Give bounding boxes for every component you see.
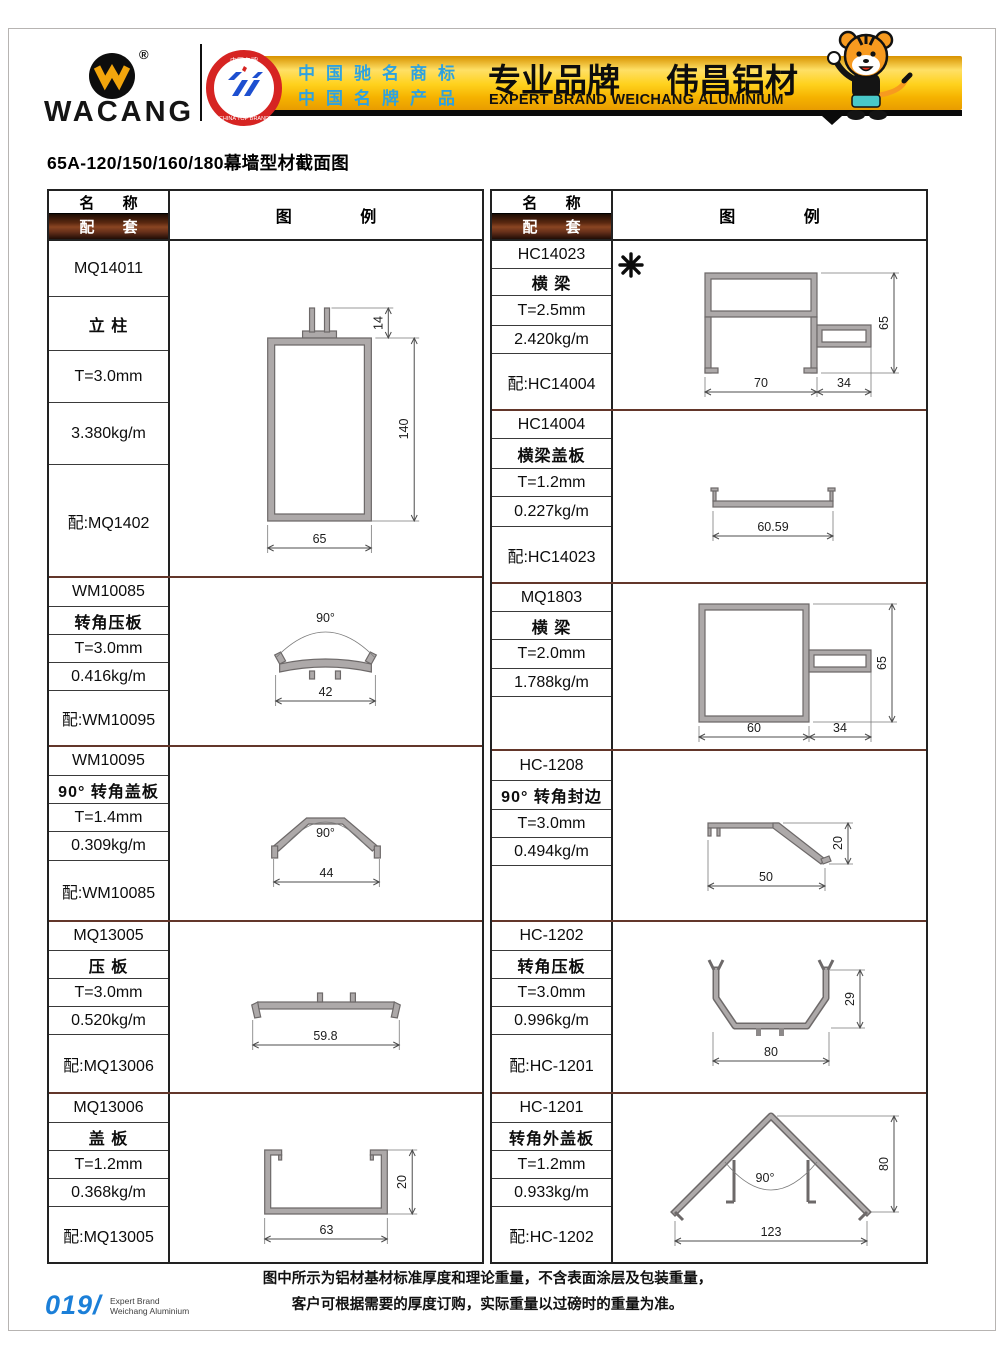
profile-block-mq1803: MQ1803 横 梁 T=2.0mm 1.788kg/m 60 34 65 — [492, 584, 926, 751]
dim-label: 42 — [319, 685, 333, 699]
profile-block-wm10085: WM10085 转角压板 T=3.0mm 0.416kg/m 配:WM10095… — [49, 578, 482, 747]
badge-bottom-text: CHINA TOP BRAND — [219, 116, 269, 122]
profile-code: HC14023 — [492, 241, 611, 269]
profile-code: MQ1803 — [492, 584, 611, 612]
dim-label: 65 — [877, 316, 891, 330]
profile-diagram-mq13006: 20 63 — [170, 1094, 482, 1262]
dim-label: 123 — [761, 1225, 782, 1239]
profile-thickness: T=2.5mm — [492, 296, 611, 326]
profile-weight: 1.788kg/m — [492, 669, 611, 697]
profile-name: 转角压板 — [492, 951, 611, 979]
profile-block-hc1208: HC-1208 90° 转角封边 T=3.0mm 0.494kg/m 50 20 — [492, 751, 926, 922]
profile-block-hc1201: HC-1201 转角外盖板 T=1.2mm 0.933kg/m 配:HC-120… — [492, 1094, 926, 1262]
footer-note-line1: 图中所示为铝材基材标准厚度和理论重量，不含表面涂层及包装重量， — [47, 1266, 928, 1292]
profile-weight: 0.996kg/m — [492, 1007, 611, 1035]
dim-label: 140 — [397, 419, 411, 440]
banner-slogan-en: EXPERT BRAND WEICHANG ALUMINIUM — [489, 92, 784, 108]
badge-star-left: ★ — [214, 84, 220, 92]
profile-weight: 0.416kg/m — [49, 663, 168, 691]
profile-diagram-wm10095: 90° 44 — [170, 747, 482, 920]
dim-label: 70 — [754, 376, 768, 390]
profile-block-hc1202: HC-1202 转角压板 T=3.0mm 0.996kg/m 配:HC-1201… — [492, 922, 926, 1094]
profile-match: 配:MQ13006 — [49, 1035, 168, 1092]
profile-diagram-hc14004: 60.59 — [613, 411, 926, 582]
profile-diagram-hc14023: 70 34 65 — [613, 241, 926, 409]
dim-label: 14 — [371, 316, 385, 330]
col-header-match: 配 套 — [49, 213, 168, 239]
profile-code: MQ13005 — [49, 922, 168, 951]
profile-name: 横梁盖板 — [492, 439, 611, 469]
dim-label: 80 — [877, 1157, 891, 1171]
dim-label: 20 — [395, 1175, 409, 1189]
profile-name: 横 梁 — [492, 269, 611, 296]
profile-weight: 0.494kg/m — [492, 838, 611, 866]
profile-name: 盖 板 — [49, 1123, 168, 1151]
profile-diagram-mq14011: 14 140 65 — [170, 241, 482, 576]
profile-thickness: T=3.0mm — [49, 979, 168, 1007]
col-header-legend: 图 例 — [170, 191, 482, 239]
dim-label: 44 — [320, 866, 334, 880]
table-header-left: 名 称 配 套 图 例 — [49, 191, 482, 241]
page-label-line2: Weichang Aluminium — [110, 1306, 189, 1316]
claim-line-1: 中国驰名商标 — [298, 61, 466, 86]
dim-label: 20 — [831, 836, 845, 850]
header-divider — [200, 44, 202, 121]
profile-code: WM10095 — [49, 747, 168, 776]
claim-line-2: 中国名牌产品 — [298, 86, 466, 111]
profile-weight: 0.309kg/m — [49, 832, 168, 861]
profile-name: 90° 转角封边 — [492, 781, 611, 810]
profile-match: 配:MQ13005 — [49, 1207, 168, 1262]
profile-name: 转角压板 — [49, 607, 168, 635]
profile-match: 配:HC14023 — [492, 527, 611, 582]
profile-name: 90° 转角盖板 — [49, 776, 168, 804]
profile-match: 配:MQ1402 — [49, 465, 168, 576]
profile-diagram-mq1803: 60 34 65 — [613, 584, 926, 749]
tiger-mascot-icon — [818, 27, 914, 126]
profile-thickness: T=1.2mm — [49, 1151, 168, 1179]
profile-thickness: T=2.0mm — [492, 640, 611, 669]
profile-code: HC14004 — [492, 411, 611, 439]
profile-thickness: T=1.2mm — [492, 469, 611, 497]
profile-match: 配:WM10085 — [49, 861, 168, 920]
dim-label: 80 — [764, 1045, 778, 1059]
profile-table-right: 名 称 配 套 图 例 HC14023 横 梁 T=2.5mm 2.420kg/… — [490, 189, 928, 1264]
dim-label: 63 — [320, 1223, 334, 1237]
china-top-brand-badge: 中国名牌 CHINA TOP BRAND ★ ★ — [206, 50, 282, 126]
profile-name: 立 柱 — [49, 297, 168, 351]
angle-label: 90° — [316, 611, 335, 625]
profile-weight: 2.420kg/m — [492, 326, 611, 354]
dim-label: 60 — [747, 721, 761, 735]
dim-label: 34 — [837, 376, 851, 390]
dim-label: 65 — [313, 532, 327, 546]
profile-thickness: T=3.0mm — [492, 979, 611, 1007]
profile-thickness: T=3.0mm — [49, 351, 168, 403]
angle-label: 90° — [316, 826, 335, 840]
profile-weight: 0.520kg/m — [49, 1007, 168, 1035]
dim-label: 29 — [843, 992, 857, 1006]
table-header-right: 名 称 配 套 图 例 — [492, 191, 926, 241]
profile-block-hc14023: HC14023 横 梁 T=2.5mm 2.420kg/m 配:HC14004 … — [492, 241, 926, 411]
angle-label: 90° — [756, 1171, 775, 1185]
profile-code: MQ14011 — [49, 241, 168, 297]
brand-wordmark: WACANG — [44, 96, 194, 129]
col-header-name: 名 称 — [49, 191, 168, 213]
page-number: 019/ — [45, 1290, 102, 1321]
profile-diagram-wm10085: 90° 42 — [170, 578, 482, 745]
profile-match — [492, 697, 611, 749]
profile-name: 转角外盖板 — [492, 1123, 611, 1151]
profile-weight: 0.933kg/m — [492, 1179, 611, 1207]
profile-code: HC-1208 — [492, 751, 611, 781]
profile-code: MQ13006 — [49, 1094, 168, 1123]
page-number-label: Expert Brand Weichang Aluminium — [110, 1296, 189, 1316]
profile-weight: 0.368kg/m — [49, 1179, 168, 1207]
profile-thickness: T=3.0mm — [492, 810, 611, 838]
badge-top-text: 中国名牌 — [230, 56, 258, 65]
dim-label: 60.59 — [757, 520, 788, 534]
profile-diagram-mq13005: 59.8 — [170, 922, 482, 1092]
asterisk-marker — [620, 254, 642, 276]
profile-diagram-hc1201: 90° 123 80 — [613, 1094, 926, 1262]
brand-claims: 中国驰名商标 中国名牌产品 — [298, 61, 466, 111]
profile-block-mq14011: MQ14011 立 柱 T=3.0mm 3.380kg/m 配:MQ1402 1… — [49, 241, 482, 578]
profile-weight: 3.380kg/m — [49, 403, 168, 465]
col-header-legend: 图 例 — [613, 191, 926, 239]
profile-thickness: T=1.2mm — [492, 1151, 611, 1179]
dim-label: 65 — [875, 656, 889, 670]
wacang-logo-icon — [88, 52, 136, 100]
profile-code: HC-1202 — [492, 922, 611, 951]
profile-diagram-hc1208: 50 20 — [613, 751, 926, 920]
profile-name: 压 板 — [49, 951, 168, 979]
page-title: 65A-120/150/160/180幕墙型材截面图 — [47, 150, 349, 175]
registered-mark: ® — [139, 47, 149, 62]
profile-weight: 0.227kg/m — [492, 497, 611, 527]
profile-thickness: T=1.4mm — [49, 804, 168, 832]
col-header-name: 名 称 — [492, 191, 611, 213]
profile-match: 配:WM10095 — [49, 691, 168, 745]
profile-diagram-hc1202: 80 29 — [613, 922, 926, 1092]
page-label-line1: Expert Brand — [110, 1296, 189, 1306]
profile-match: 配:HC-1202 — [492, 1207, 611, 1262]
profile-block-wm10095: WM10095 90° 转角盖板 T=1.4mm 0.309kg/m 配:WM1… — [49, 747, 482, 922]
profile-match — [492, 866, 611, 920]
profile-table-left: 名 称 配 套 图 例 MQ14011 立 柱 T=3.0mm 3.380kg/… — [47, 189, 484, 1264]
profile-block-mq13005: MQ13005 压 板 T=3.0mm 0.520kg/m 配:MQ13006 … — [49, 922, 482, 1094]
profile-name: 横 梁 — [492, 612, 611, 640]
profile-code: WM10085 — [49, 578, 168, 607]
dim-label: 50 — [759, 870, 773, 884]
dim-label: 34 — [833, 721, 847, 735]
profile-block-hc14004: HC14004 横梁盖板 T=1.2mm 0.227kg/m 配:HC14023… — [492, 411, 926, 584]
profile-code: HC-1201 — [492, 1094, 611, 1123]
dim-label: 59.8 — [313, 1029, 337, 1043]
profile-block-mq13006: MQ13006 盖 板 T=1.2mm 0.368kg/m 配:MQ13005 … — [49, 1094, 482, 1262]
profile-thickness: T=3.0mm — [49, 635, 168, 663]
col-header-match: 配 套 — [492, 213, 611, 239]
profile-match: 配:HC14004 — [492, 354, 611, 409]
badge-star-right: ★ — [267, 84, 273, 92]
profile-match: 配:HC-1201 — [492, 1035, 611, 1092]
